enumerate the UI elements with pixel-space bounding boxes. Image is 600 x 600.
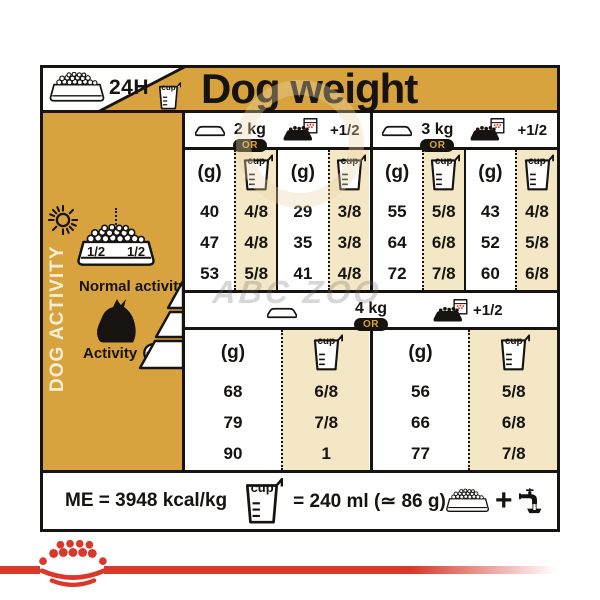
ration-value: 4/8 xyxy=(236,196,276,227)
measuring-cup-icon: cup xyxy=(521,153,554,193)
metabolizable-energy-label: ME = 3948 kcal/kg xyxy=(65,490,227,512)
gram-unit-header: (g) xyxy=(408,342,432,364)
kibble-bowl-icon xyxy=(446,476,489,526)
feeding-table-frame: 24H cup Dog weight 1/2 1/2 DOG ACTIVITY … xyxy=(40,65,560,532)
ration-value: 3/8 xyxy=(330,196,370,227)
ration-value: 4/8 xyxy=(517,196,557,227)
ration-value: 77 xyxy=(373,439,469,470)
grams-column: (g) 40 47 53 xyxy=(185,150,234,290)
gram-unit-header: (g) xyxy=(478,162,502,184)
dog-silhouette-icon xyxy=(91,297,141,345)
pair-2kg-mixed: (g) 29 35 41 cup 3/8 3/8 4/8 xyxy=(276,150,369,290)
ration-value: 5/8 xyxy=(470,376,557,407)
pair-2kg-dry: (g) 40 47 53 cup 4/8 4/8 5/8 xyxy=(185,150,276,290)
ration-value: 7/8 xyxy=(470,439,557,470)
cups-column: cup 4/8 5/8 6/8 xyxy=(515,150,557,290)
sidebar-title: DOG ACTIVITY xyxy=(47,274,69,392)
dog-weight-value: 4 kg xyxy=(355,300,387,317)
ration-value: 68 xyxy=(185,376,281,407)
gram-unit-header: (g) xyxy=(291,162,315,184)
grams-column: (g) 43 52 60 xyxy=(466,150,515,290)
ration-value: 56 xyxy=(373,376,469,407)
ration-value: 3/8 xyxy=(330,227,370,258)
half-ration-left: 1/2 xyxy=(87,244,105,259)
cups-column: cup 6/8 7/8 1 xyxy=(281,330,370,470)
dog-weight-value: 2 kg xyxy=(234,121,266,138)
ration-value: 35 xyxy=(278,227,327,258)
ration-value: 4/8 xyxy=(236,227,276,258)
gram-unit-header: (g) xyxy=(385,162,409,184)
ration-value: 6/8 xyxy=(470,407,557,438)
plus-half-label: +1/2 xyxy=(517,122,547,139)
ration-value: 6/8 xyxy=(517,259,557,290)
ration-value: 55 xyxy=(373,196,422,227)
weight-header-3kg: 3 kg OR +1/2 xyxy=(373,113,558,147)
pair-3kg-mixed: (g) 43 52 60 cup 4/8 5/8 6/8 xyxy=(464,150,557,290)
ration-value: 90 xyxy=(185,439,281,470)
empty-bowl-icon xyxy=(267,306,297,319)
gram-unit-header: (g) xyxy=(198,162,222,184)
brand-bar-right xyxy=(104,566,556,574)
or-badge: OR xyxy=(233,139,267,152)
ration-value: 7/8 xyxy=(424,259,464,290)
top-ration-table: (g) 40 47 53 cup 4/8 4/8 5/8 (g) xyxy=(185,150,557,293)
measuring-cup-icon: cup xyxy=(497,333,530,373)
or-badge: OR xyxy=(354,318,388,331)
kibble-bowl-icon xyxy=(49,72,105,103)
cup-word: cup xyxy=(241,480,283,495)
moon-icon xyxy=(157,211,179,237)
cup-word: cup xyxy=(427,156,460,167)
per-day-label: 24H xyxy=(109,76,149,100)
page-title: Dog weight xyxy=(201,69,417,109)
ration-value: 1 xyxy=(283,439,370,470)
faucet-water-icon xyxy=(519,475,542,527)
pouch-bowl-icon xyxy=(470,118,508,142)
cup-equivalence-label: = 240 ml (≃ 86 g) xyxy=(293,490,446,513)
empty-bowl-icon xyxy=(195,124,225,137)
ration-value: 79 xyxy=(185,407,281,438)
measuring-cup-icon: cup xyxy=(241,476,283,526)
measuring-cup-icon: cup xyxy=(156,81,181,111)
pair-4kg-dry: (g) 68 79 90 cup 6/8 7/8 1 xyxy=(185,330,370,470)
cups-column: cup 4/8 4/8 5/8 xyxy=(234,150,276,290)
measuring-cup-icon: cup xyxy=(333,153,366,193)
pouch-bowl-icon xyxy=(283,118,321,142)
ration-value: 43 xyxy=(466,196,515,227)
plus-half-label: +1/2 xyxy=(330,122,360,139)
dog-activity-sidebar: 1/2 1/2 DOG ACTIVITY Normal activity Act… xyxy=(43,113,185,470)
cup-word: cup xyxy=(521,156,554,167)
grams-column: (g) 68 79 90 xyxy=(185,330,281,470)
cups-column: cup 5/8 6/8 7/8 xyxy=(422,150,464,290)
dog-weight-header: Dog weight xyxy=(185,68,557,113)
activity-word: Activity xyxy=(83,345,137,362)
half-ration-right: 1/2 xyxy=(127,244,145,259)
cup-word: cup xyxy=(333,156,366,167)
cup-word: cup xyxy=(240,156,273,167)
ration-value: 53 xyxy=(185,259,234,290)
ration-value: 41 xyxy=(278,259,327,290)
grams-column: (g) 56 66 77 xyxy=(373,330,469,470)
ration-value: 66 xyxy=(373,407,469,438)
weight-header-2kg: 2 kg OR +1/2 xyxy=(185,113,373,147)
cups-column: cup 5/8 6/8 7/8 xyxy=(468,330,557,470)
ration-value: 7/8 xyxy=(283,407,370,438)
ration-value: 29 xyxy=(278,196,327,227)
grams-column: (g) 29 35 41 xyxy=(278,150,327,290)
empty-bowl-icon xyxy=(382,124,412,137)
cup-word: cup xyxy=(156,83,181,92)
cup-word: cup xyxy=(310,336,343,347)
ration-value: 4/8 xyxy=(330,259,370,290)
ration-value: 40 xyxy=(185,196,234,227)
per-day-corner-cell: 24H cup xyxy=(43,68,185,113)
grams-column: (g) 55 64 72 xyxy=(373,150,422,290)
ration-value: 47 xyxy=(185,227,234,258)
ration-value: 6/8 xyxy=(424,227,464,258)
plus-sign: + xyxy=(495,486,513,516)
plus-half-label: +1/2 xyxy=(473,302,503,319)
ration-value: 72 xyxy=(373,259,422,290)
ration-value: 5/8 xyxy=(517,227,557,258)
royal-canin-crown-logo xyxy=(28,538,116,594)
gram-unit-header: (g) xyxy=(221,342,245,364)
ration-value: 6/8 xyxy=(283,376,370,407)
ration-grid: 2 kg OR +1/2 3 kg OR +1/2 xyxy=(185,113,557,470)
cup-word: cup xyxy=(497,336,530,347)
pair-4kg-mixed: (g) 56 66 77 cup 5/8 6/8 7/8 xyxy=(370,330,558,470)
ration-value: 64 xyxy=(373,227,422,258)
weight-header-4kg: 4 kg OR +1/2 xyxy=(185,293,557,330)
or-badge: OR xyxy=(420,139,454,152)
cups-column: cup 3/8 3/8 4/8 xyxy=(328,150,370,290)
pouch-bowl-icon xyxy=(433,299,471,323)
dog-weight-value: 3 kg xyxy=(421,121,453,138)
measuring-cup-icon: cup xyxy=(427,153,460,193)
energy-footnote-strip: ME = 3948 kcal/kg cup = 240 ml (≃ 86 g) … xyxy=(43,470,557,529)
ration-value: 52 xyxy=(466,227,515,258)
pair-3kg-dry: (g) 55 64 72 cup 5/8 6/8 7/8 xyxy=(370,150,464,290)
ration-value: 60 xyxy=(466,259,515,290)
measuring-cup-icon: cup xyxy=(310,333,343,373)
feeding-guide-page: 24H cup Dog weight 1/2 1/2 DOG ACTIVITY … xyxy=(0,0,600,600)
weight-header-row: 2 kg OR +1/2 3 kg OR +1/2 xyxy=(185,113,557,150)
ration-value: 5/8 xyxy=(424,196,464,227)
sun-icon xyxy=(47,204,79,236)
bottom-ration-table: (g) 68 79 90 cup 6/8 7/8 1 (g) xyxy=(185,330,557,470)
activity-ramp-icon xyxy=(137,278,185,371)
ration-value: 5/8 xyxy=(236,259,276,290)
measuring-cup-icon: cup xyxy=(240,153,273,193)
